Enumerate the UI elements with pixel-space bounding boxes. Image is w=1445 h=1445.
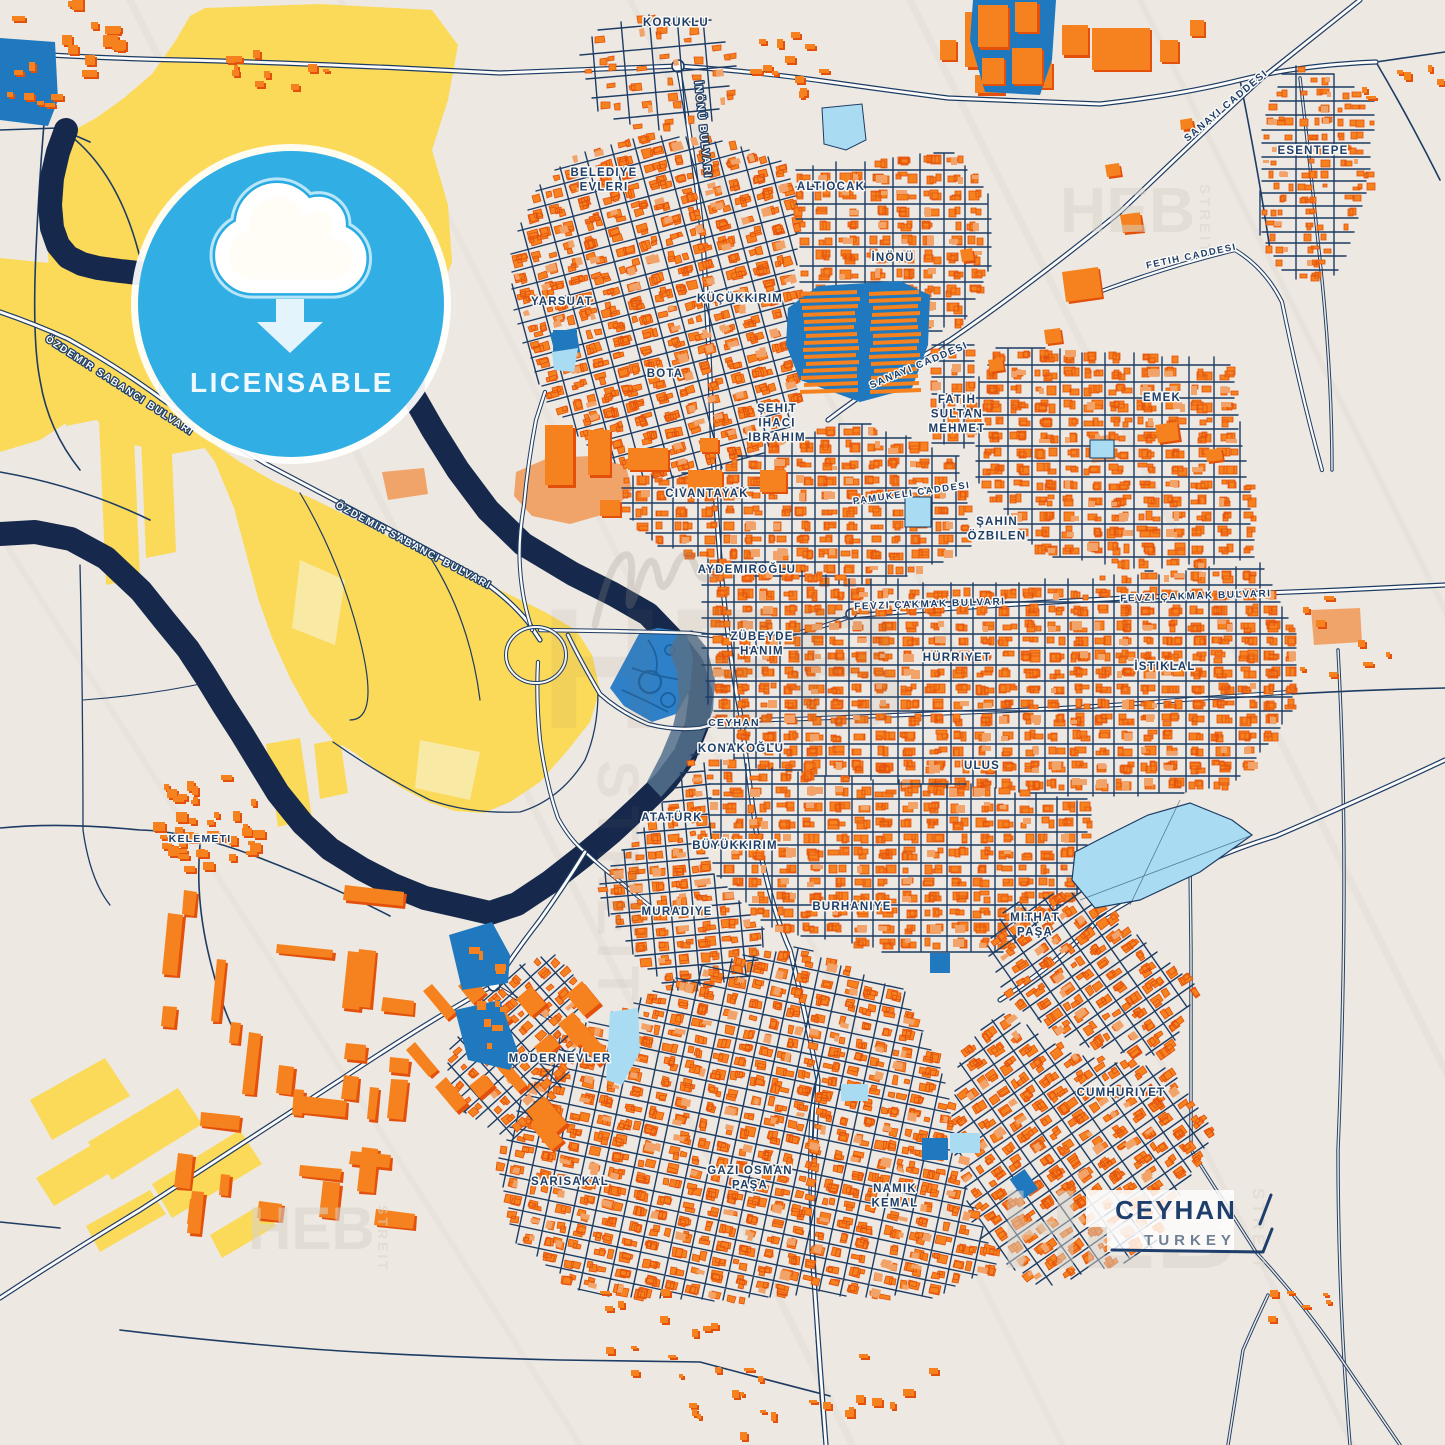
svg-text:CIVANTAYAK: CIVANTAYAK bbox=[665, 488, 749, 500]
svg-text:MEHMET: MEHMET bbox=[928, 423, 985, 435]
svg-text:STREIT: STREIT bbox=[585, 760, 650, 1008]
svg-text:STREIT: STREIT bbox=[1196, 184, 1213, 255]
svg-text:IBRAHIM: IBRAHIM bbox=[748, 432, 806, 444]
svg-text:HANIM: HANIM bbox=[740, 645, 784, 657]
svg-text:MODERNEVLER: MODERNEVLER bbox=[509, 1053, 612, 1065]
svg-text:İNÖNÜ: İNÖNÜ bbox=[871, 251, 914, 264]
svg-text:IHACI: IHACI bbox=[758, 417, 795, 429]
svg-text:ŞAHIN: ŞAHIN bbox=[976, 516, 1018, 528]
svg-text:ŞEHIT: ŞEHIT bbox=[757, 403, 797, 415]
svg-text:ALTIOCAK: ALTIOCAK bbox=[797, 181, 865, 193]
svg-text:BELEDIYE: BELEDIYE bbox=[570, 167, 637, 179]
svg-text:SULTAN: SULTAN bbox=[931, 408, 983, 420]
svg-text:PAŞA: PAŞA bbox=[732, 1179, 768, 1191]
svg-text:EMEK: EMEK bbox=[1143, 392, 1181, 404]
svg-text:GAZI OSMAN: GAZI OSMAN bbox=[707, 1165, 792, 1177]
svg-text:STREIT: STREIT bbox=[1249, 1188, 1268, 1272]
svg-text:MITHAT: MITHAT bbox=[1010, 912, 1060, 924]
svg-text:KORUKLU: KORUKLU bbox=[643, 17, 709, 29]
svg-text:HEB: HEB bbox=[1060, 174, 1195, 246]
svg-text:LICENSABLE: LICENSABLE bbox=[190, 367, 394, 398]
svg-text:CUMHURIYET: CUMHURIYET bbox=[1077, 1087, 1166, 1099]
svg-text:KELEMETI: KELEMETI bbox=[169, 833, 232, 845]
svg-text:BOTA: BOTA bbox=[647, 368, 684, 380]
svg-text:ZÜBEYDE: ZÜBEYDE bbox=[730, 630, 793, 643]
svg-text:HÜRRIYET: HÜRRIYET bbox=[923, 651, 991, 664]
svg-text:TURKEY: TURKEY bbox=[1144, 1232, 1236, 1249]
svg-text:YARSUAT: YARSUAT bbox=[531, 296, 593, 308]
svg-text:PAŞA: PAŞA bbox=[1017, 926, 1053, 938]
svg-text:ESENTEPE: ESENTEPE bbox=[1278, 145, 1349, 157]
svg-text:KONAKOĞLU: KONAKOĞLU bbox=[698, 742, 784, 755]
svg-text:FATIH: FATIH bbox=[938, 394, 976, 406]
svg-text:NAMIK: NAMIK bbox=[873, 1183, 917, 1195]
svg-text:MURADIYE: MURADIYE bbox=[642, 906, 713, 918]
svg-text:BURHANIYE: BURHANIYE bbox=[812, 901, 891, 913]
svg-text:İSTIKLAL: İSTIKLAL bbox=[1134, 660, 1195, 673]
svg-text:HEB: HEB bbox=[248, 1195, 375, 1262]
svg-text:EVLERI: EVLERI bbox=[580, 181, 629, 193]
svg-text:ÖZBILEN: ÖZBILEN bbox=[968, 529, 1027, 542]
svg-text:KEMAL: KEMAL bbox=[872, 1197, 919, 1209]
svg-text:KÜÇÜKKIRIM: KÜÇÜKKIRIM bbox=[697, 292, 783, 305]
svg-text:AYDEMIROĞLU: AYDEMIROĞLU bbox=[698, 563, 796, 576]
svg-text:ULUS: ULUS bbox=[964, 760, 1000, 772]
svg-text:BÜYÜKKIRIM: BÜYÜKKIRIM bbox=[692, 839, 777, 852]
svg-text:STREIT: STREIT bbox=[375, 1205, 391, 1273]
svg-text:CEYHAN: CEYHAN bbox=[1115, 1195, 1237, 1225]
svg-text:ATATÜRK: ATATÜRK bbox=[641, 811, 702, 824]
svg-text:CEYHAN: CEYHAN bbox=[708, 717, 760, 729]
svg-text:SARISAKAL: SARISAKAL bbox=[531, 1176, 609, 1188]
